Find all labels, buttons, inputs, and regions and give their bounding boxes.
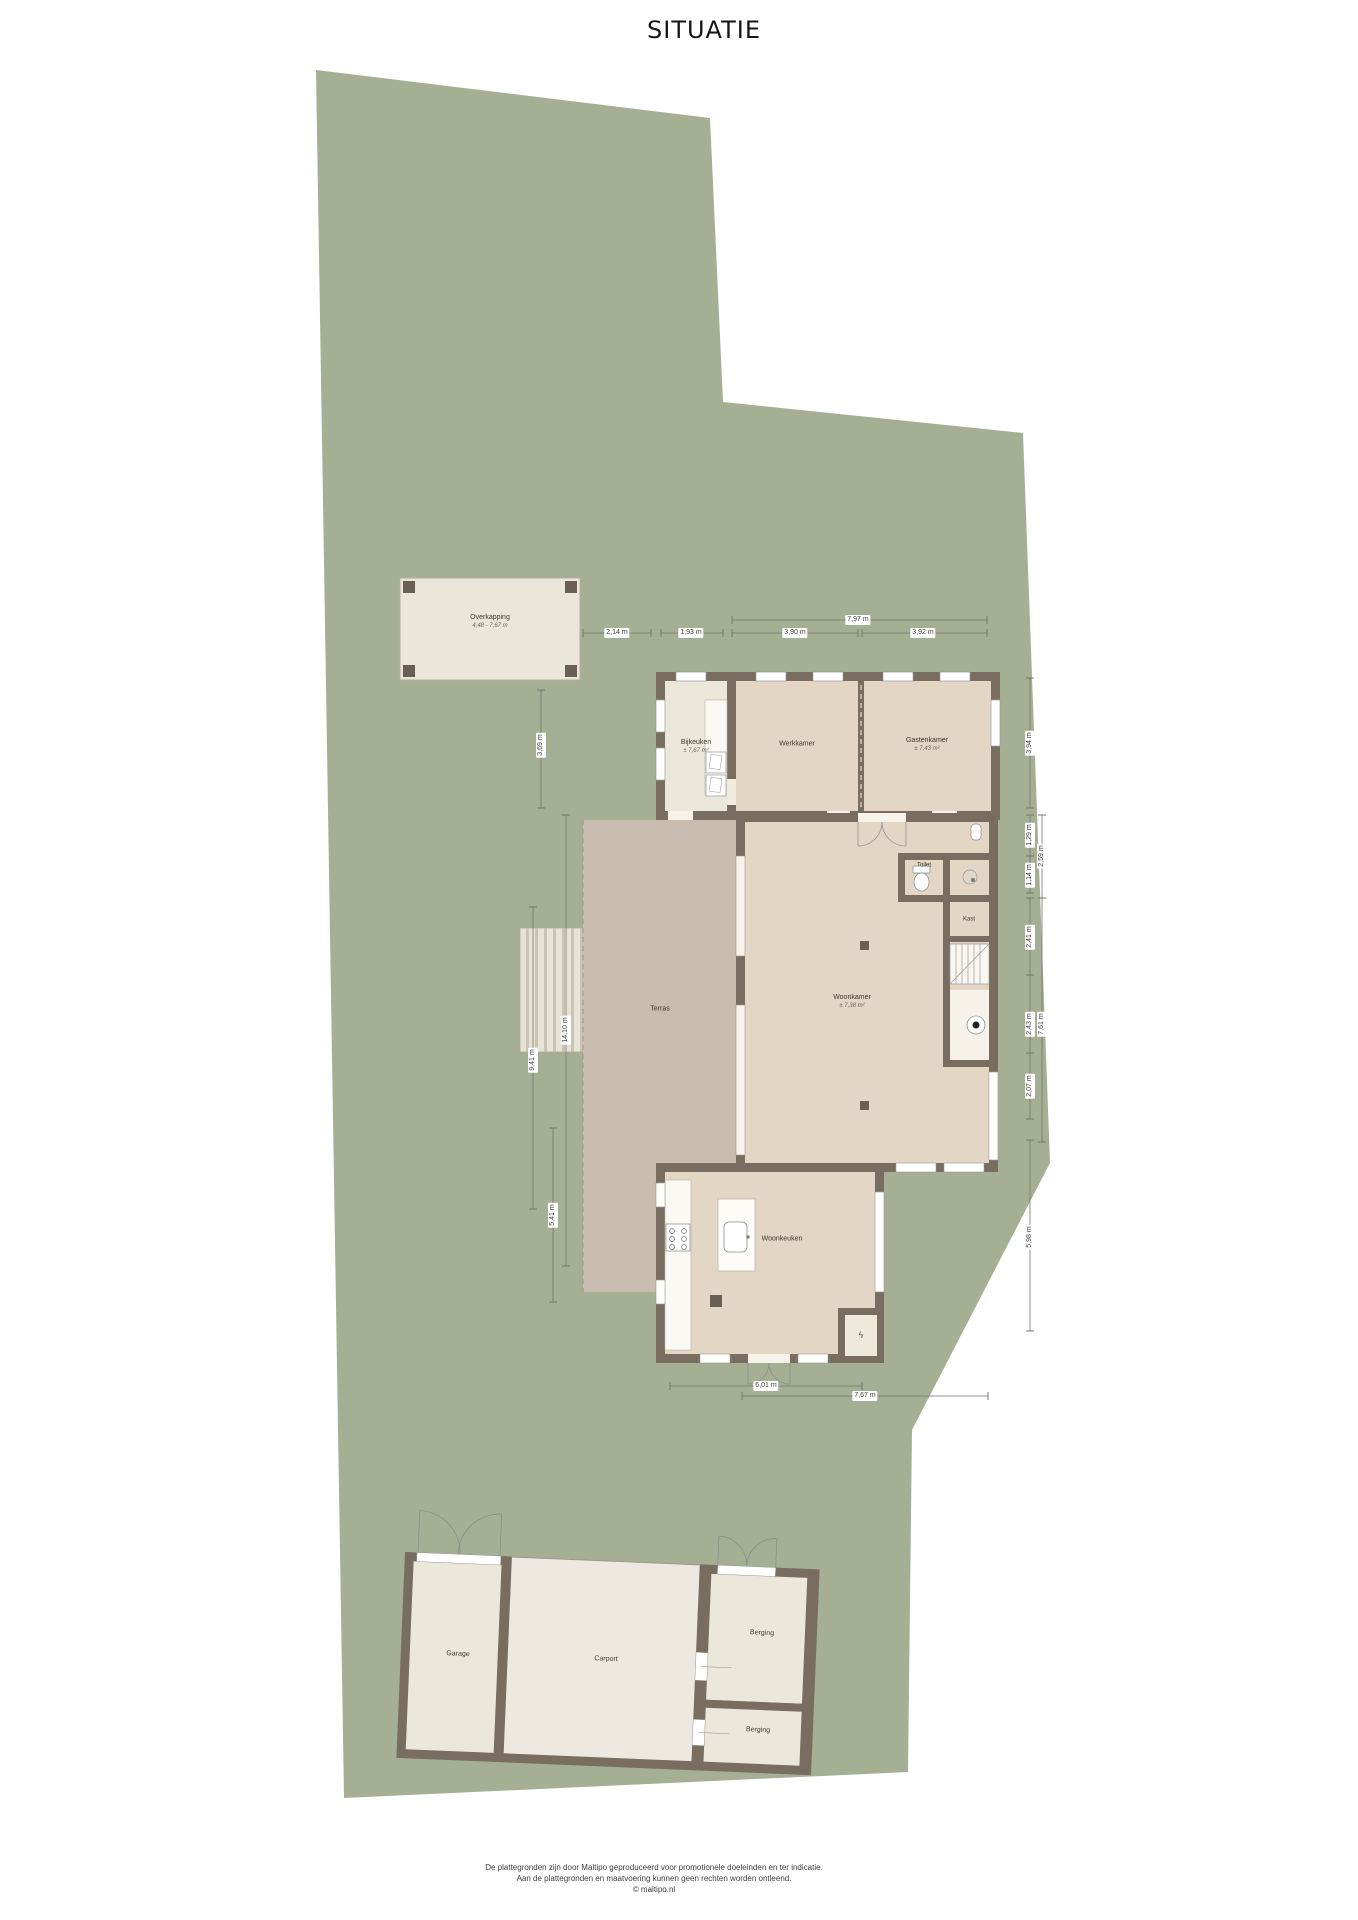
kitchen-island xyxy=(718,1199,755,1271)
dim-top-2: 1,93 m xyxy=(678,628,703,638)
dim-left-2: 14,10 m xyxy=(561,1015,571,1044)
footer-line-1: De plattegronden zijn door Maltipo gepro… xyxy=(0,1862,1308,1873)
dim-right-8: 2,07 m xyxy=(1025,1073,1035,1098)
stairs-icon xyxy=(950,944,989,984)
footer-line-3: © maltipo.nl xyxy=(0,1884,1308,1895)
dim-left-3: 9,41 m xyxy=(528,1047,538,1072)
dim-right-6: 2,43 m xyxy=(1025,1011,1035,1036)
dim-right-5: 2,41 m xyxy=(1025,924,1035,949)
label-werkkamer: Werkkamer xyxy=(779,741,815,750)
dim-top-total: 7,97 m xyxy=(845,615,870,625)
dim-right-3: 2,59 m xyxy=(1037,843,1047,868)
sink-icon xyxy=(724,1222,747,1252)
electric-icon: ϟ xyxy=(859,1330,864,1340)
stove-icon xyxy=(666,1224,690,1251)
boiler-icon xyxy=(967,1016,985,1034)
label-woonkeuken: Woonkeuken xyxy=(762,1236,803,1245)
dim-bottom-2: 7,67 m xyxy=(852,1391,877,1401)
washbasin-icon xyxy=(971,824,981,840)
label-gastenkamer: Gastenkamer ± 7,43 m² xyxy=(906,737,948,753)
label-terras: Terras xyxy=(650,1006,669,1015)
label-toilet: Toilet xyxy=(917,862,931,870)
label-carport: Carport xyxy=(594,1655,618,1665)
dim-top-4: 3,92 m xyxy=(910,628,935,638)
footer-line-2: Aan de plattegronden en maatvoering kunn… xyxy=(0,1873,1308,1884)
dim-right-2: 1,29 m xyxy=(1025,822,1035,847)
shower-icon xyxy=(963,870,977,884)
dim-top-3: 3,90 m xyxy=(782,628,807,638)
dim-right-4: 1,14 m xyxy=(1025,862,1035,887)
dim-right-1: 3,94 m xyxy=(1025,730,1035,755)
label-berging-1: Berging xyxy=(750,1629,774,1639)
label-bijkeuken: Bijkeuken ± 7,67 m² xyxy=(681,739,711,755)
label-berging-2: Berging xyxy=(746,1726,770,1736)
label-kast: Kast xyxy=(963,916,975,924)
label-woonkamer: Woonkamer ± 7,38 m² xyxy=(833,994,871,1010)
dim-left-1: 3,69 m xyxy=(536,732,546,757)
dim-right-7: 7,61 m xyxy=(1037,1011,1047,1036)
footer-disclaimer: De plattegronden zijn door Maltipo gepro… xyxy=(0,1862,1308,1895)
label-overkapping: Overkapping 4,48 - 7,67 m xyxy=(470,614,510,630)
page-title: SITUATIE xyxy=(50,16,1358,44)
dim-top-1: 2,14 m xyxy=(604,628,629,638)
room-berging-1 xyxy=(706,1574,807,1704)
situatie-floorplan: SITUATIE Overkapping 4,48 - 7,67 m Bijke… xyxy=(0,0,1358,1920)
dim-right-9: 5,98 m xyxy=(1025,1224,1035,1249)
dim-left-4: 5,41 m xyxy=(548,1202,558,1227)
dim-bottom-1: 6,01 m xyxy=(753,1381,778,1391)
label-garage: Garage xyxy=(446,1650,470,1660)
toilet-icon xyxy=(913,866,930,891)
fireplace-icon xyxy=(710,1295,722,1307)
room-berging-2 xyxy=(703,1708,801,1766)
garden-steps xyxy=(520,928,583,1052)
plan-drawing xyxy=(0,0,1358,1920)
